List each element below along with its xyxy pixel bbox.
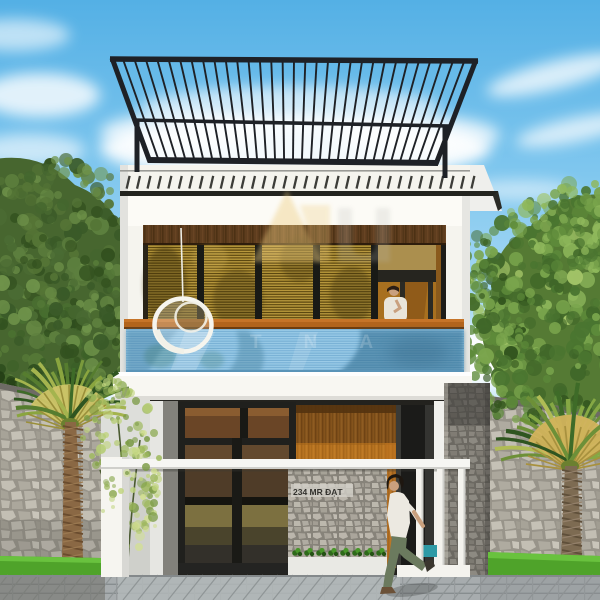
svg-text:TNA: TNA [250,332,415,353]
svg-text:V: V [118,385,129,402]
svg-text:234 MR ĐẠT: 234 MR ĐẠT [293,487,343,497]
